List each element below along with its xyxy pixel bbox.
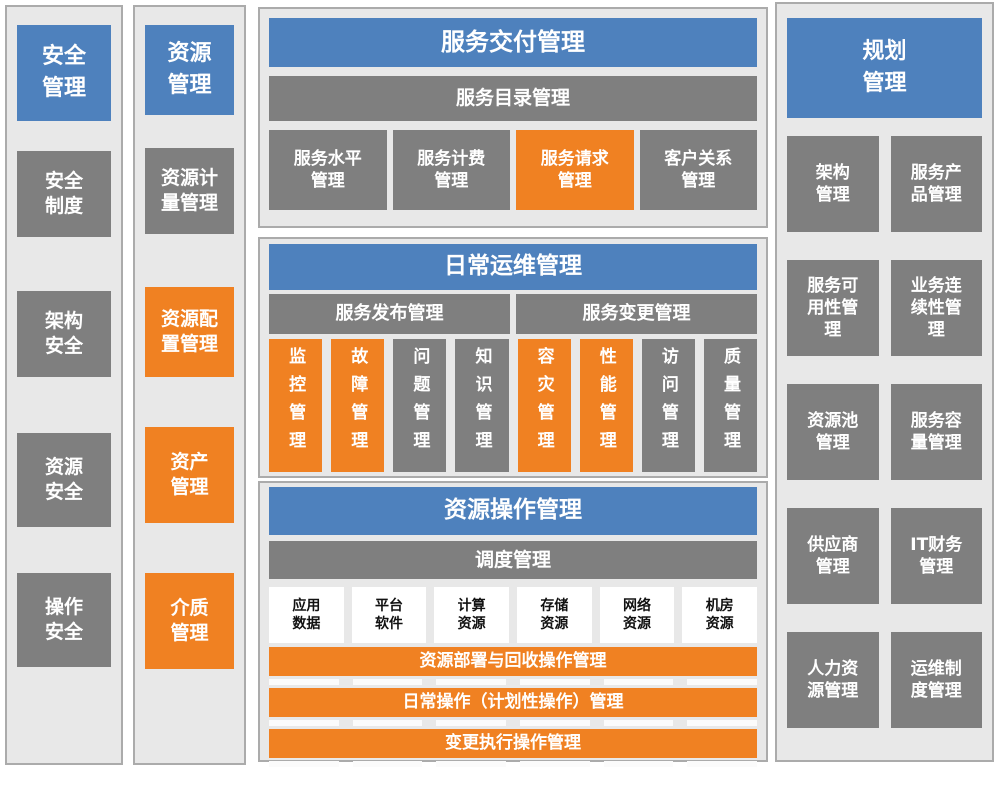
box-human-resource: 人力资 源管理 (787, 632, 879, 728)
box-media-management: 介质 管理 (145, 573, 234, 669)
planning-grid: 架构 管理 服务产 品管理 服务可 用性管 理 业务连 续性管 理 资源池 管理… (787, 136, 982, 728)
planning-panel: 规划 管理 架构 管理 服务产 品管理 服务可 用性管 理 业务连 续性管 理 … (775, 2, 994, 762)
bar-service-release: 服务发布管理 (269, 294, 510, 334)
box-service-availability: 服务可 用性管 理 (787, 260, 879, 356)
bar-daily-planned-ops: 日常操作（计划性操作）管理 (269, 688, 757, 717)
box-service-product: 服务产 品管理 (891, 136, 983, 232)
resource-ops-header: 资源操作管理 (269, 487, 757, 535)
box-compute-resource: 计算 资源 (434, 587, 509, 643)
service-delivery-row: 服务水平 管理 服务计费 管理 服务请求 管理 客户关系 管理 (269, 130, 757, 210)
box-platform-software: 平台 软件 (352, 587, 427, 643)
box-disaster-recovery: 容灾管理 (518, 339, 571, 472)
bar-service-change: 服务变更管理 (516, 294, 757, 334)
separator-row (269, 761, 757, 767)
box-monitoring: 监控管理 (269, 339, 322, 472)
box-ops-policy: 运维制 度管理 (891, 632, 983, 728)
box-access: 访问管理 (642, 339, 695, 472)
box-resource-metering: 资源计 量管理 (145, 148, 234, 234)
daily-ops-items: 监控管理 故障管理 问题管理 知识管理 容灾管理 性能管理 访问管理 质量管理 (269, 339, 757, 472)
daily-ops-bars: 服务发布管理 服务变更管理 (269, 294, 757, 334)
box-network-resource: 网络 资源 (600, 587, 675, 643)
box-storage-resource: 存储 资源 (517, 587, 592, 643)
separator-row (269, 679, 757, 685)
box-security-policy: 安全 制度 (17, 151, 111, 237)
resource-ops-panel: 资源操作管理 调度管理 应用 数据 平台 软件 计算 资源 存储 资源 网络 资… (258, 481, 768, 762)
service-delivery-panel: 服务交付管理 服务目录管理 服务水平 管理 服务计费 管理 服务请求 管理 客户… (258, 7, 768, 228)
box-service-billing: 服务计费 管理 (393, 130, 511, 210)
box-architecture-mgmt: 架构 管理 (787, 136, 879, 232)
security-header: 安全 管理 (17, 25, 111, 121)
box-resource-configuration: 资源配 置管理 (145, 287, 234, 377)
separator-row (269, 720, 757, 726)
box-service-level: 服务水平 管理 (269, 130, 387, 210)
resource-panel: 资源 管理 资源计 量管理 资源配 置管理 资产 管理 介质 管理 (133, 5, 246, 765)
box-asset-management: 资产 管理 (145, 427, 234, 523)
daily-ops-header: 日常运维管理 (269, 244, 757, 290)
box-resource-pool: 资源池 管理 (787, 384, 879, 480)
security-panel: 安全 管理 安全 制度 架构 安全 资源 安全 操作 安全 (5, 5, 123, 765)
box-resource-security: 资源 安全 (17, 433, 111, 527)
bar-change-execution-ops: 变更执行操作管理 (269, 729, 757, 758)
resource-header: 资源 管理 (145, 25, 234, 115)
service-delivery-header: 服务交付管理 (269, 18, 757, 67)
box-customer-relationship: 客户关系 管理 (640, 130, 758, 210)
box-business-continuity: 业务连 续性管 理 (891, 260, 983, 356)
planning-header: 规划 管理 (787, 18, 982, 118)
box-app-data: 应用 数据 (269, 587, 344, 643)
box-service-request: 服务请求 管理 (516, 130, 634, 210)
box-architecture-security: 架构 安全 (17, 291, 111, 377)
box-supplier-mgmt: 供应商 管理 (787, 508, 879, 604)
box-problem: 问题管理 (393, 339, 446, 472)
box-datacenter-resource: 机房 资源 (682, 587, 757, 643)
box-incident: 故障管理 (331, 339, 384, 472)
bar-service-catalog: 服务目录管理 (269, 76, 757, 121)
daily-ops-panel: 日常运维管理 服务发布管理 服务变更管理 监控管理 故障管理 问题管理 知识管理… (258, 237, 768, 478)
box-quality: 质量管理 (704, 339, 757, 472)
box-operation-security: 操作 安全 (17, 573, 111, 667)
box-it-finance: IT财务 管理 (891, 508, 983, 604)
box-performance: 性能管理 (580, 339, 633, 472)
bar-scheduling: 调度管理 (269, 541, 757, 579)
bar-deploy-reclaim-ops: 资源部署与回收操作管理 (269, 647, 757, 676)
box-knowledge: 知识管理 (455, 339, 508, 472)
box-service-capacity: 服务容 量管理 (891, 384, 983, 480)
resource-types-row: 应用 数据 平台 软件 计算 资源 存储 资源 网络 资源 机房 资源 (269, 587, 757, 643)
